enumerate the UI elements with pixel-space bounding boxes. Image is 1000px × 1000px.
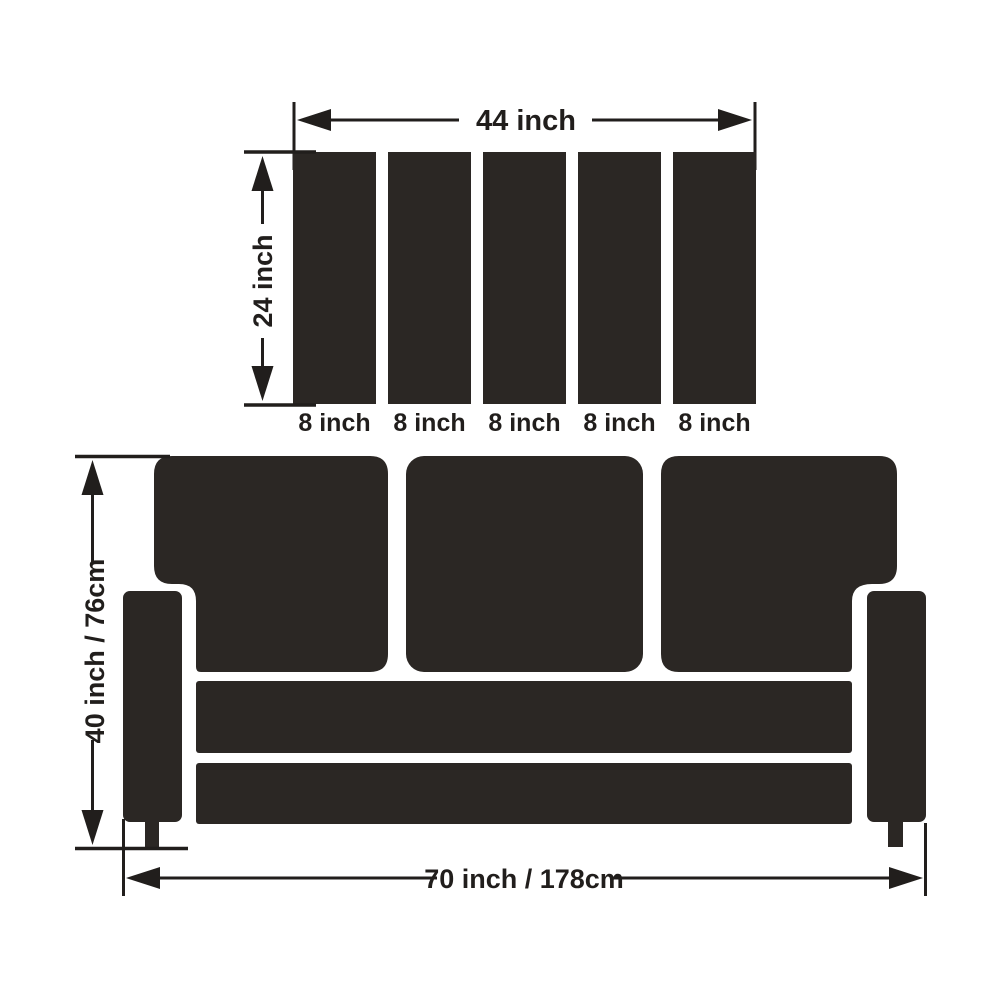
slat-bar-2 (388, 152, 471, 404)
slat-width-label-1: 8 inch (298, 409, 370, 437)
arrowhead-left-icon (297, 109, 331, 131)
arrowhead-down-icon (252, 366, 274, 401)
slat-width-label-4: 8 inch (583, 409, 655, 437)
sofa-height-label: 40 inch / 76cm (80, 559, 110, 744)
slat-width-label-5: 8 inch (678, 409, 750, 437)
slat-width-label-3: 8 inch (488, 409, 560, 437)
base-frame-bar (196, 763, 852, 824)
slat-bar-4 (578, 152, 661, 404)
sofa-width-label: 70 inch / 178cm (424, 864, 624, 894)
sofa-diagram: 40 inch / 76cm 70 inch / 178cm (75, 456, 926, 896)
sofa-width-dimension-arrow: 70 inch / 178cm (126, 864, 923, 894)
arrowhead-down-icon (82, 810, 104, 845)
slat-bar-1 (293, 152, 376, 404)
dimension-diagram-canvas: 44 inch 24 inch 8 inch 8 inch 8 inch 8 i… (0, 0, 1000, 1000)
sofa-leg-right (888, 815, 903, 847)
slat-bar-5 (673, 152, 756, 404)
top-diagram: 44 inch 24 inch 8 inch 8 inch 8 inch 8 i… (244, 102, 756, 437)
back-cushion-middle (406, 456, 643, 672)
arrowhead-up-icon (252, 156, 274, 191)
back-cushion-left (154, 456, 388, 672)
seat-cushion-bar (196, 681, 852, 753)
width-dimension-label: 44 inch (476, 105, 576, 137)
sofa-dimension-diagram: 44 inch 24 inch 8 inch 8 inch 8 inch 8 i… (0, 0, 1000, 1000)
back-cushion-right (661, 456, 897, 672)
sofa-arm-left (123, 591, 182, 822)
sofa-arm-right (867, 591, 926, 822)
width-dimension-arrow-44: 44 inch (297, 105, 752, 137)
height-dimension-label: 24 inch (248, 234, 278, 327)
arrowhead-left-icon (126, 867, 160, 889)
arrowhead-right-icon (889, 867, 923, 889)
slat-bar-3 (483, 152, 566, 404)
arrowhead-right-icon (718, 109, 752, 131)
slat-width-label-2: 8 inch (393, 409, 465, 437)
sofa-leg-left (145, 815, 159, 847)
arrowhead-up-icon (82, 460, 104, 495)
